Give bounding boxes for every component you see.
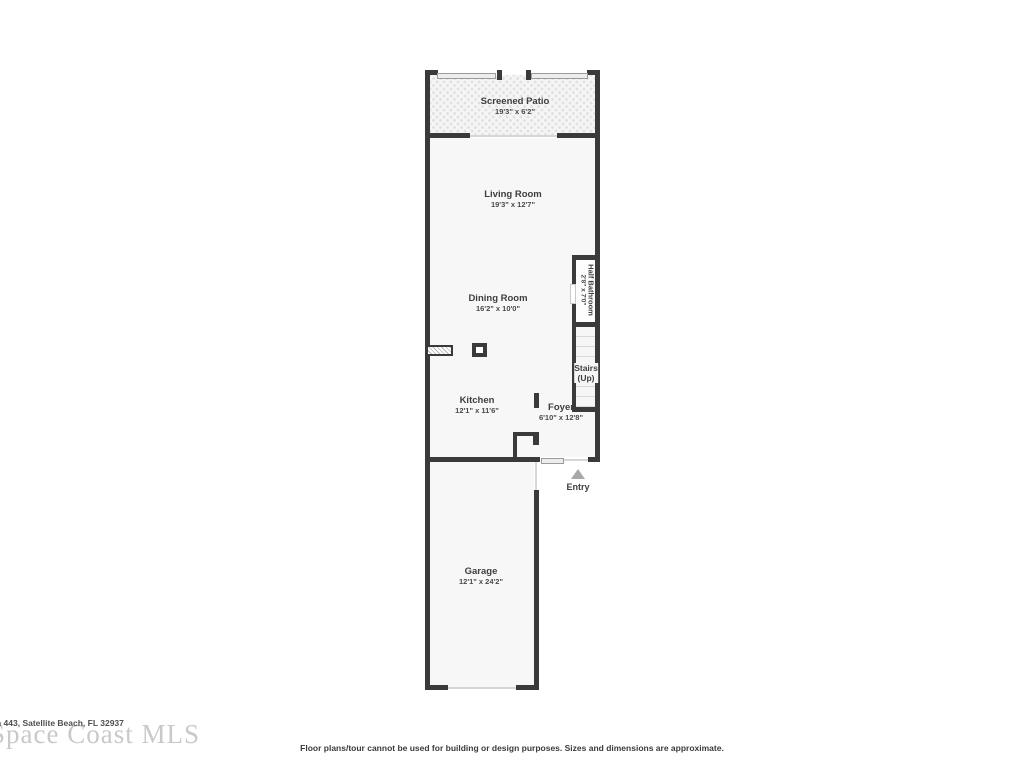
floor-plan-page: Screened Patio 19'3" x 6'2" Living Room … [0,0,1024,768]
patio-divider-wall-left [425,133,470,138]
entry-sidelight-line [564,459,588,461]
room-dims: 19'3" x 12'7" [484,200,542,209]
room-label-kitchen: Kitchen 12'1" x 11'6" [455,395,499,415]
room-name: Dining Room [468,293,527,304]
bottom-wall-right-stub [588,457,600,462]
garage-bottom-left-foot [425,685,448,690]
patio-screen-panel-left [437,73,496,79]
room-name: Foyer [539,402,583,413]
address-watermark: n 443, Satellite Beach, FL 32937 [0,718,124,728]
room-label-half-bathroom: Half Bathroom 2'8" x 7'0" [576,255,596,326]
room-dims: 19'3" x 6'2" [481,107,550,116]
wall-top-right-stub [587,70,600,75]
room-name: Half Bathroom [587,255,596,326]
closet-left-wall [513,432,517,460]
entry-door [541,458,564,464]
garage-door-line [448,687,516,689]
room-label-living-room: Living Room 19'3" x 12'7" [484,189,542,209]
room-label-screened-patio: Screened Patio 19'3" x 6'2" [481,96,550,116]
stairs-direction: (Up) [574,373,598,383]
room-dims: 12'1" x 11'6" [455,406,499,415]
kitchen-island-post [472,343,487,357]
garage-right-wall [534,490,539,690]
bottom-wall-main [425,457,540,462]
stairs-name: Stairs [574,363,598,373]
patio-divider-wall-right [557,133,600,138]
room-dims: 12'1" x 24'2" [459,577,503,586]
entry-label-wrap: Entry [566,482,589,492]
entry-arrow-icon [571,469,585,479]
room-label-garage: Garage 12'1" x 24'2" [459,566,503,586]
closet-right-cap [533,432,539,445]
disclaimer-text: Floor plans/tour cannot be used for buil… [0,743,1024,753]
wall-left [425,70,430,690]
room-dims: 6'10" x 12'8" [539,413,583,422]
room-dims: 2'8" x 7'0" [579,255,587,326]
room-label-stairs: Stairs (Up) [574,363,598,383]
room-dims: 16'2" x 10'0" [468,304,527,313]
kitchen-counter [426,345,453,356]
room-name: Kitchen [455,395,499,406]
room-label-foyer: Foyer 6'10" x 12'8" [539,402,583,422]
room-name: Screened Patio [481,96,550,107]
patio-post-left [497,70,502,80]
room-name: Living Room [484,189,542,200]
foyer-garage-door-line [535,462,537,490]
wall-right [595,70,600,462]
entry-label: Entry [566,482,589,492]
room-name: Garage [459,566,503,577]
room-label-dining-room: Dining Room 16'2" x 10'0" [468,293,527,313]
patio-slider-opening-line [470,135,557,137]
garage-bottom-right-foot [516,685,539,690]
patio-screen-panel-right [531,73,588,79]
